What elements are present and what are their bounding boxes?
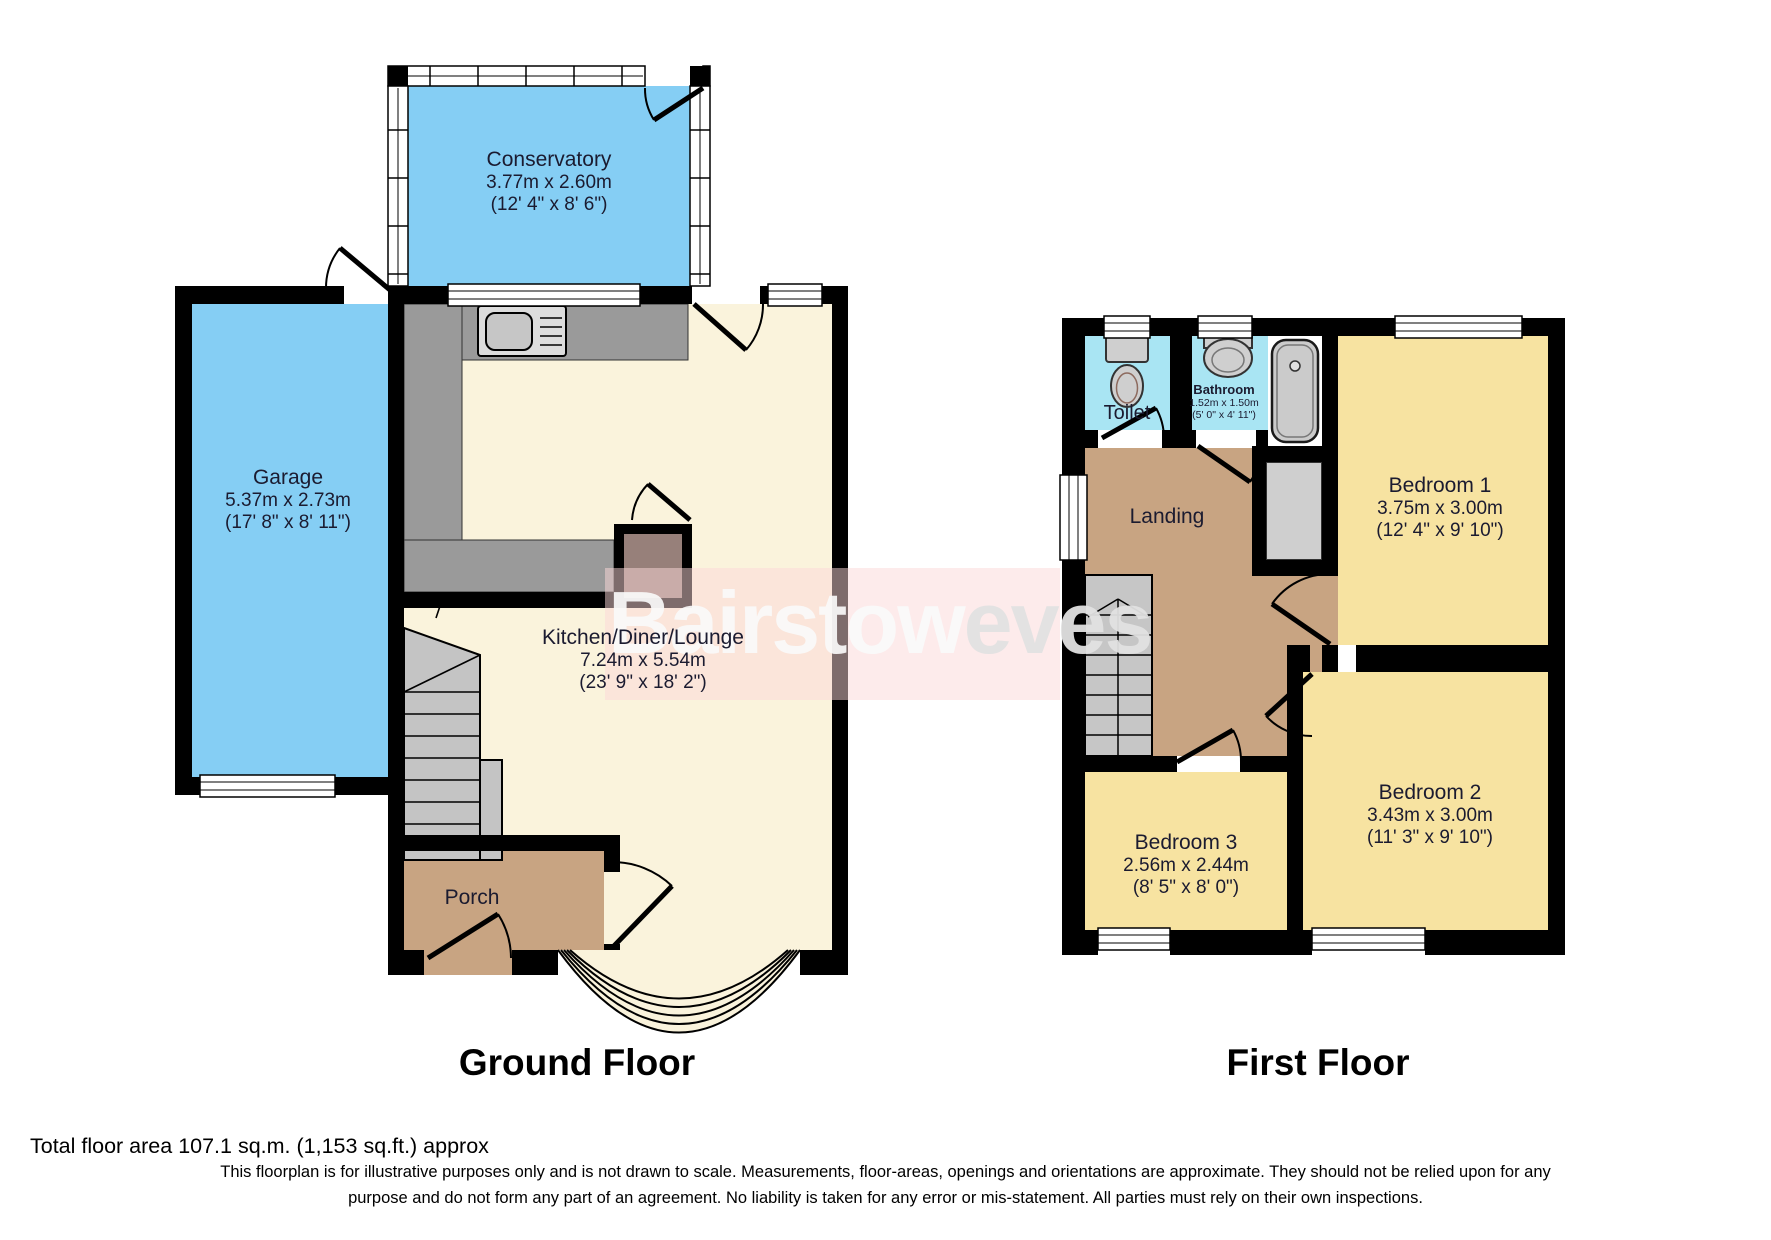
lounge-window [768, 284, 822, 306]
room-label-conservatory: Conservatory 3.77m x 2.60m (12' 4" x 8' … [486, 148, 612, 216]
sink-icon [1204, 336, 1252, 377]
room-label-porch: Porch [445, 886, 500, 910]
ground-floor-title: Ground Floor [459, 1042, 695, 1084]
room-label-bedroom2: Bedroom 2 3.43m x 3.00m (11' 3" x 9' 10"… [1367, 781, 1493, 849]
first-floor-title: First Floor [1227, 1042, 1410, 1084]
room-label-garage: Garage 5.37m x 2.73m (17' 8" x 8' 11") [225, 466, 351, 534]
disclaimer-line-2: purpose and do not form any part of an a… [0, 1189, 1771, 1208]
room-label-bathroom: Bathroom 1.52m x 1.50m (5' 0" x 4' 11") [1189, 382, 1258, 421]
disclaimer-line-1: This floorplan is for illustrative purpo… [0, 1163, 1771, 1182]
room-label-landing: Landing [1130, 505, 1205, 529]
garage-side-door [326, 248, 390, 290]
room-label-toilet: Toilet [1104, 402, 1151, 425]
porch-room [404, 851, 604, 950]
total-floor-area: Total floor area 107.1 sq.m. (1,153 sq.f… [30, 1134, 489, 1159]
garage-window [200, 775, 335, 797]
garage-room [192, 304, 388, 777]
room-label-kitchen-diner-lounge: Kitchen/Diner/Lounge 7.24m x 5.54m (23' … [542, 626, 744, 694]
kitchen-window [448, 284, 640, 306]
watermark-part2: eves [964, 573, 1152, 672]
room-label-bedroom1: Bedroom 1 3.75m x 3.00m (12' 4" x 9' 10"… [1376, 474, 1503, 542]
room-label-bedroom3: Bedroom 3 2.56m x 2.44m (8' 5" x 8' 0") [1123, 831, 1249, 899]
bathtub-icon [1272, 340, 1318, 442]
cupboard [1266, 462, 1322, 560]
kitchen-sink-icon [478, 306, 566, 356]
floorplan-canvas: Bairstoweves Conservatory 3.77m x 2.60m … [0, 0, 1771, 1240]
